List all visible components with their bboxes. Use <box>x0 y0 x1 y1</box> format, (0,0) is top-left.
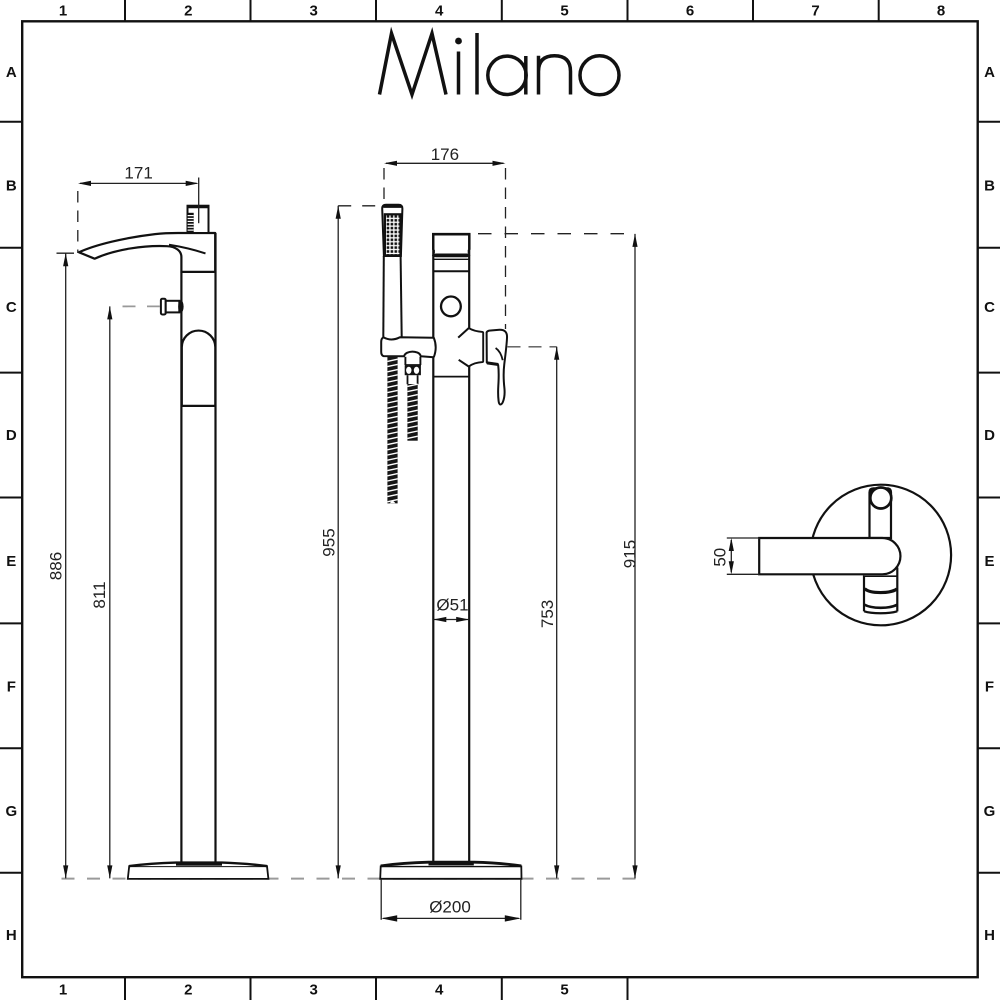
svg-text:4: 4 <box>435 3 444 20</box>
svg-text:F: F <box>7 679 16 696</box>
svg-text:6: 6 <box>686 3 694 20</box>
svg-text:A: A <box>984 64 995 81</box>
svg-text:Ø51: Ø51 <box>436 596 468 615</box>
svg-text:G: G <box>5 803 17 820</box>
svg-text:811: 811 <box>90 581 109 608</box>
svg-text:H: H <box>6 927 17 944</box>
svg-text:F: F <box>985 679 994 696</box>
svg-text:886: 886 <box>46 552 65 580</box>
svg-text:1: 1 <box>59 982 67 999</box>
svg-text:B: B <box>984 178 995 195</box>
svg-text:G: G <box>984 803 996 820</box>
svg-text:2: 2 <box>184 982 192 999</box>
svg-text:176: 176 <box>431 145 459 164</box>
svg-text:C: C <box>984 299 995 316</box>
svg-text:3: 3 <box>310 982 318 999</box>
svg-text:D: D <box>984 427 995 444</box>
svg-text:E: E <box>984 553 994 570</box>
svg-text:171: 171 <box>124 164 152 183</box>
svg-text:A: A <box>6 64 17 81</box>
svg-text:C: C <box>6 299 17 316</box>
svg-text:5: 5 <box>560 3 568 20</box>
svg-text:50: 50 <box>710 548 729 567</box>
svg-text:753: 753 <box>538 600 557 628</box>
svg-text:Ø200: Ø200 <box>429 898 471 917</box>
svg-text:915: 915 <box>620 540 639 568</box>
svg-text:955: 955 <box>319 528 338 556</box>
svg-text:4: 4 <box>435 982 444 999</box>
svg-text:7: 7 <box>811 3 819 20</box>
svg-text:B: B <box>6 178 17 195</box>
svg-text:E: E <box>6 553 16 570</box>
svg-text:3: 3 <box>310 3 318 20</box>
svg-text:8: 8 <box>937 3 945 20</box>
svg-text:5: 5 <box>560 982 568 999</box>
svg-text:1: 1 <box>59 3 67 20</box>
svg-text:2: 2 <box>184 3 192 20</box>
svg-text:H: H <box>984 927 995 944</box>
svg-text:D: D <box>6 427 17 444</box>
